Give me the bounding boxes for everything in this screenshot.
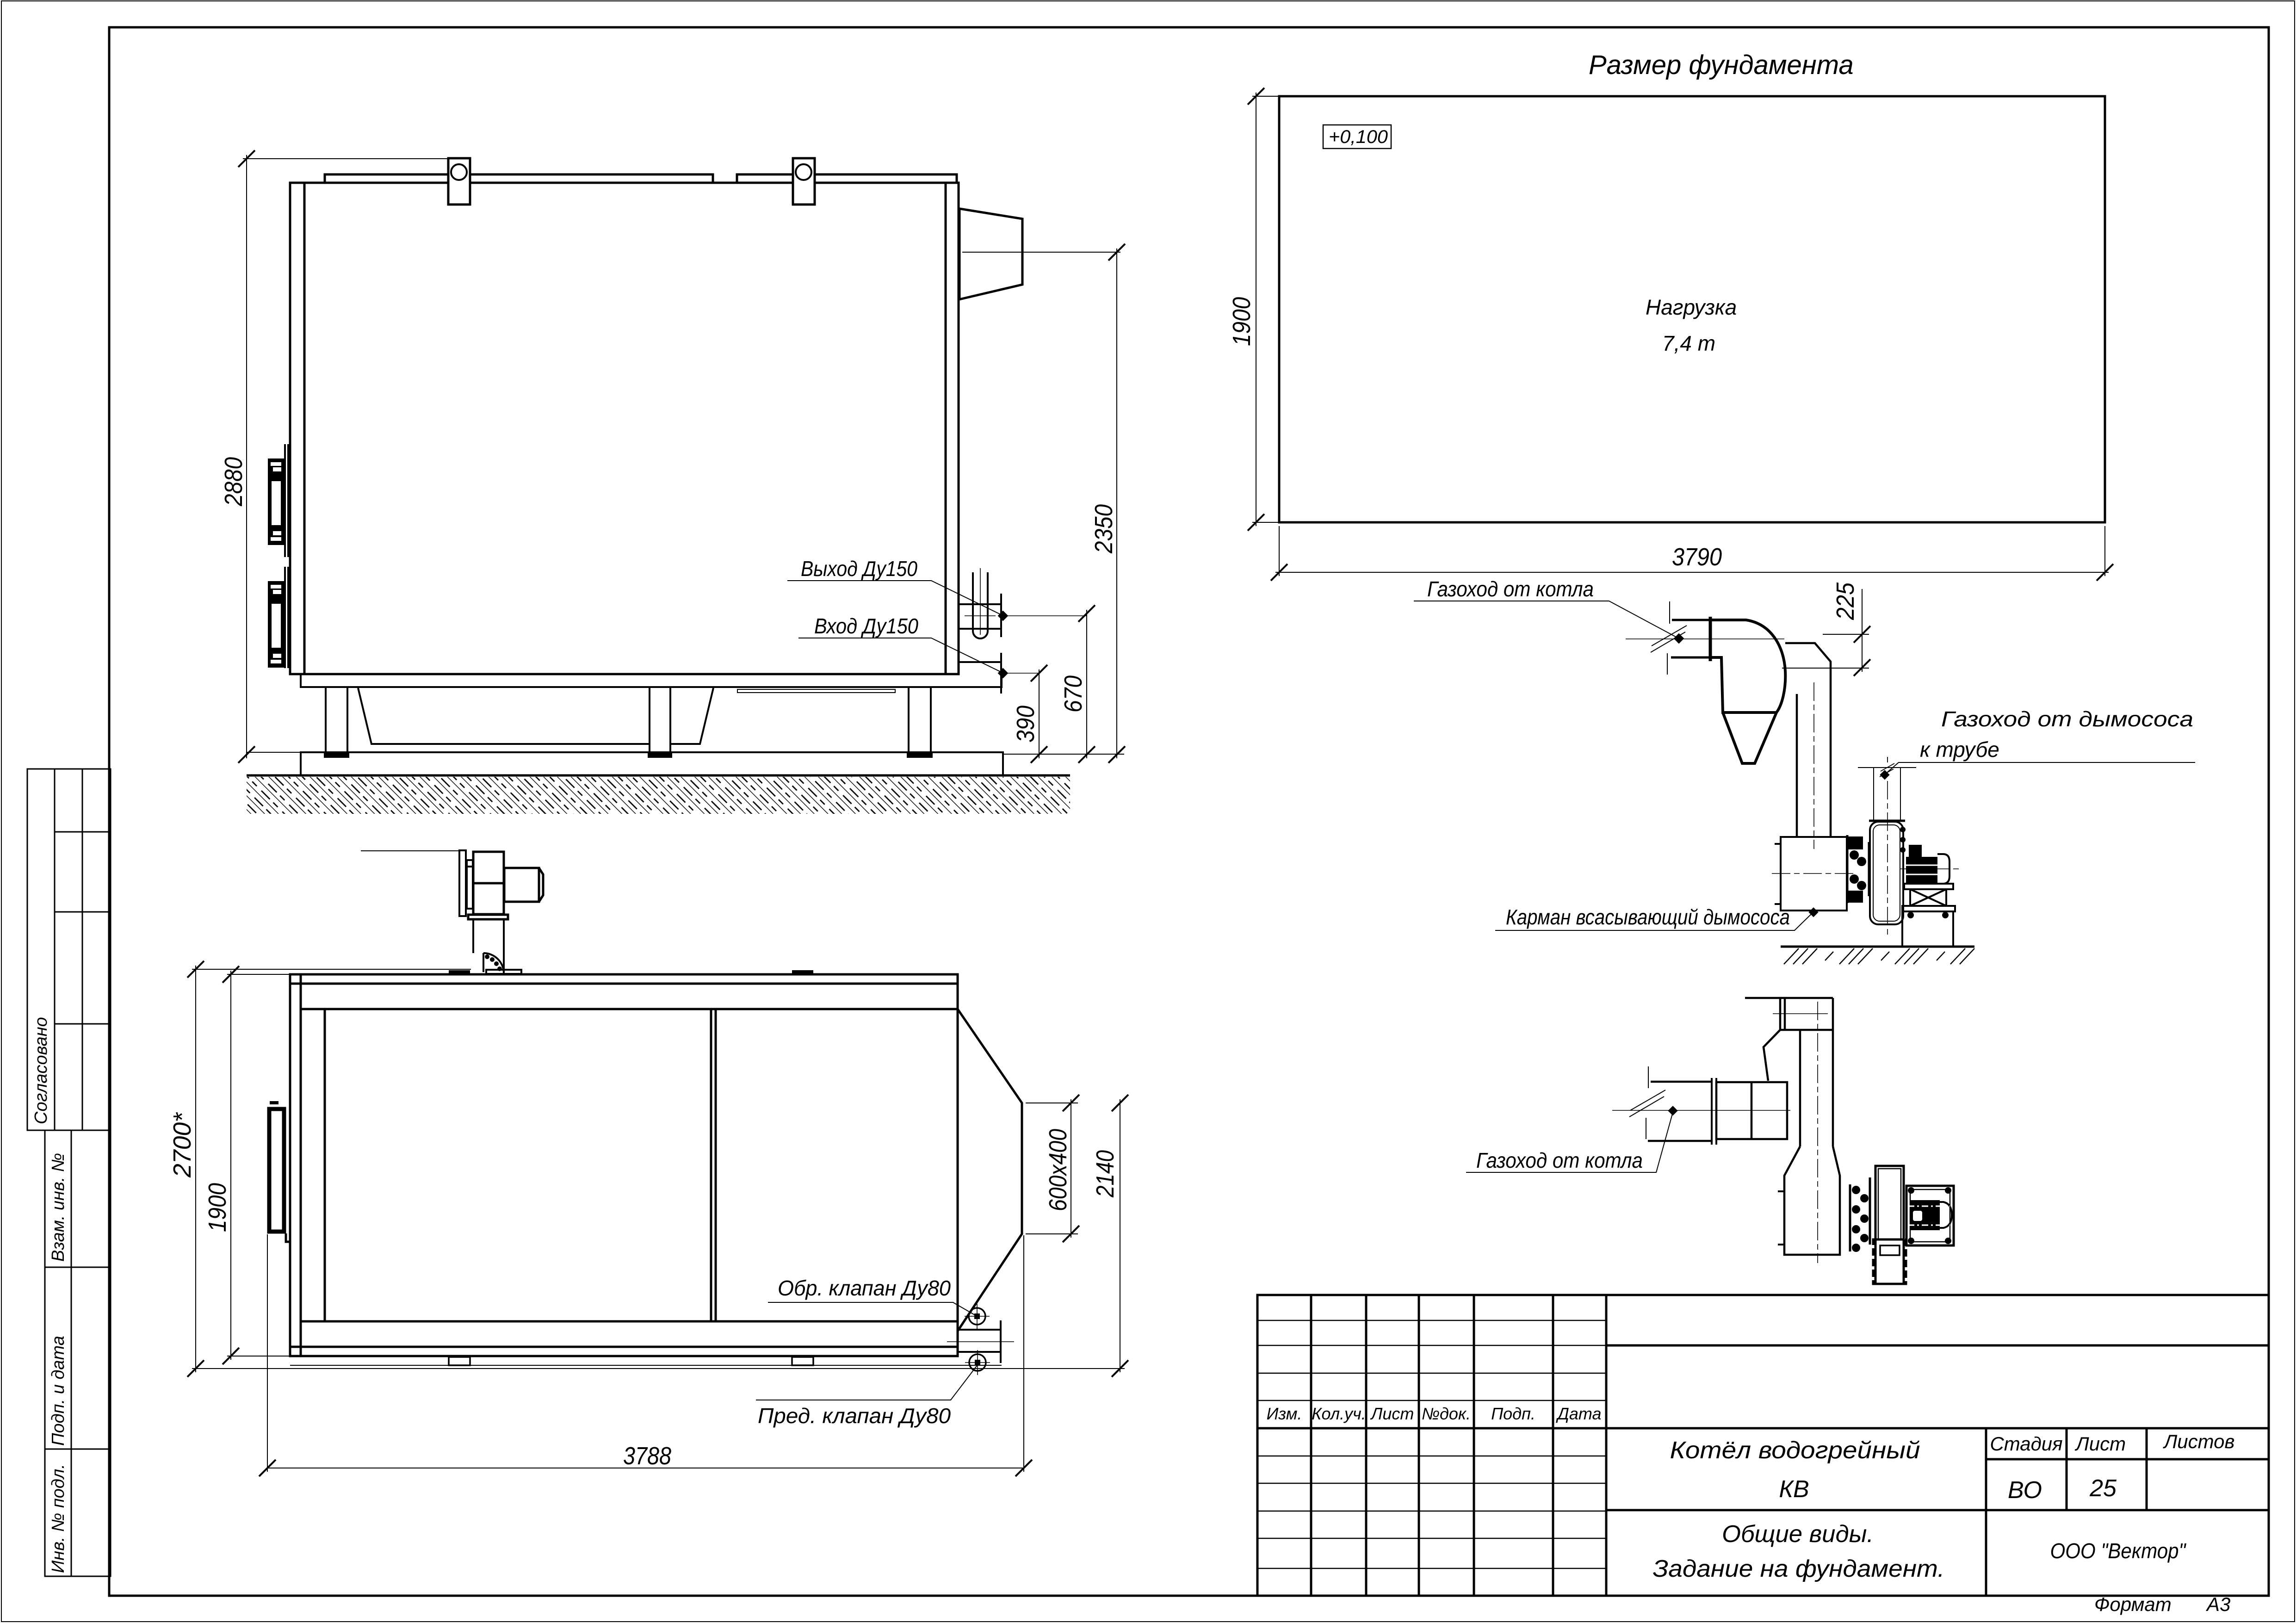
svg-text:№док.: №док. [1422,1404,1471,1423]
svg-text:Согласовано: Согласовано [31,1017,51,1124]
svg-text:Подп. и дата: Подп. и дата [49,1336,68,1446]
svg-text:КВ: КВ [1779,1476,1809,1503]
svg-text:2140: 2140 [1091,1150,1119,1198]
svg-text:Газоход от котла: Газоход от котла [1476,1148,1643,1172]
svg-text:2700*: 2700* [168,1112,196,1178]
svg-text:Выход Ду150: Выход Ду150 [801,557,917,581]
svg-text:А3: А3 [2205,1593,2230,1615]
svg-text:Нагрузка: Нагрузка [1646,295,1737,319]
svg-text:Котёл водогрейный: Котёл водогрейный [1670,1437,1920,1464]
svg-text:1900: 1900 [204,1183,231,1232]
svg-text:Взам. инв. №: Взам. инв. № [49,1153,68,1262]
svg-text:к трубе: к трубе [1920,737,1999,762]
svg-text:225: 225 [1832,582,1859,620]
svg-text:1900: 1900 [1228,297,1256,346]
svg-text:Задание на фундамент.: Задание на фундамент. [1653,1555,1945,1582]
svg-text:Лист: Лист [2074,1433,2126,1455]
svg-text:Размер фундамента: Размер фундамента [1589,50,1854,80]
svg-text:3790: 3790 [1672,543,1722,571]
svg-text:Кол.уч.: Кол.уч. [1312,1404,1366,1423]
svg-text:Листов: Листов [2163,1431,2235,1452]
svg-text:Газоход от дымососа: Газоход от дымососа [1941,707,2193,731]
svg-text:Вход Ду150: Вход Ду150 [814,614,918,638]
svg-text:+0,100: +0,100 [1329,127,1388,147]
svg-text:2350: 2350 [1090,504,1118,554]
svg-text:Газоход от котла: Газоход от котла [1427,577,1594,601]
svg-text:390: 390 [1012,706,1040,743]
svg-text:Стадия: Стадия [1990,1433,2062,1455]
svg-text:Подп.: Подп. [1491,1404,1535,1423]
svg-text:Карман всасывающий дымососа: Карман всасывающий дымососа [1506,905,1790,929]
svg-text:Общие виды.: Общие виды. [1722,1521,1874,1548]
svg-text:600х400: 600х400 [1044,1129,1072,1211]
svg-text:Инв. № подл.: Инв. № подл. [49,1464,68,1573]
svg-text:3788: 3788 [623,1442,671,1470]
svg-text:Пред. клапан Ду80: Пред. клапан Ду80 [758,1404,951,1428]
svg-text:Лист: Лист [1370,1404,1414,1423]
svg-text:670: 670 [1059,675,1087,712]
svg-text:ООО "Вектор": ООО "Вектор" [2050,1539,2187,1563]
svg-text:Изм.: Изм. [1267,1404,1302,1423]
svg-text:25: 25 [2089,1475,2117,1502]
svg-text:Формат: Формат [2094,1593,2172,1615]
svg-text:Дата: Дата [1556,1404,1602,1423]
svg-text:Обр. клапан Ду80: Обр. клапан Ду80 [778,1276,951,1300]
svg-text:ВО: ВО [2008,1477,2042,1504]
svg-text:7,4 т: 7,4 т [1662,331,1715,355]
svg-text:2880: 2880 [220,457,248,507]
